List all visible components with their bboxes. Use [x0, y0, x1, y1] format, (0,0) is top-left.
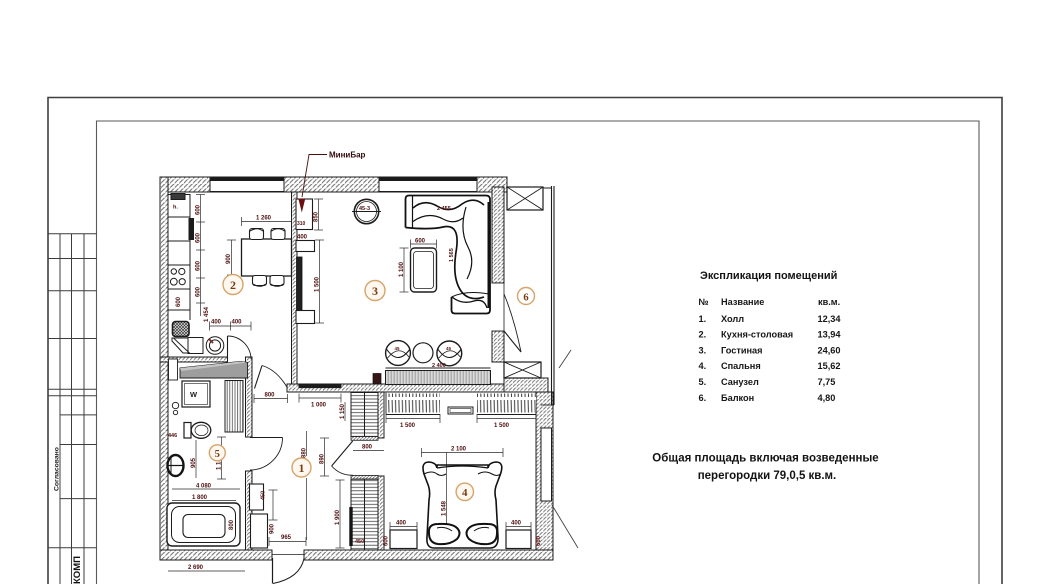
- svg-text:400: 400: [297, 235, 308, 241]
- svg-text:Гостиная: Гостиная: [721, 345, 763, 355]
- svg-text:900: 900: [270, 523, 276, 534]
- svg-text:перегородки 79,0,5 кв.м.: перегородки 79,0,5 кв.м.: [698, 470, 837, 482]
- svg-text:400: 400: [232, 320, 243, 326]
- svg-text:45-3: 45-3: [359, 206, 370, 212]
- svg-text:1 150: 1 150: [340, 403, 346, 419]
- svg-text:900: 900: [226, 253, 232, 264]
- svg-text:Спальня: Спальня: [721, 361, 761, 371]
- svg-text:1 900: 1 900: [335, 509, 341, 525]
- svg-text:3: 3: [372, 284, 378, 298]
- svg-text:1 500: 1 500: [315, 276, 321, 292]
- svg-text:1 454: 1 454: [204, 306, 210, 322]
- svg-text:1 565: 1 565: [449, 248, 455, 262]
- svg-text:800: 800: [229, 519, 235, 530]
- svg-text:45: 45: [395, 346, 401, 351]
- svg-text:2 455: 2 455: [437, 206, 451, 212]
- svg-text:890: 890: [320, 453, 326, 464]
- svg-text:850: 850: [314, 211, 320, 222]
- svg-text:965: 965: [281, 535, 292, 541]
- svg-text:600: 600: [536, 535, 542, 546]
- svg-text:13,94: 13,94: [818, 330, 842, 340]
- svg-text:12,34: 12,34: [818, 314, 842, 324]
- svg-text:1 500: 1 500: [494, 423, 510, 429]
- svg-text:1 000: 1 000: [311, 403, 327, 409]
- svg-text:6.: 6.: [699, 393, 707, 403]
- svg-text:880: 880: [302, 447, 308, 458]
- svg-text:24,60: 24,60: [818, 345, 841, 355]
- svg-text:1 100: 1 100: [399, 261, 405, 277]
- svg-text:6: 6: [523, 293, 528, 304]
- svg-text:КОМП: КОМП: [72, 556, 83, 584]
- svg-text:Экспликация помещений: Экспликация помещений: [700, 270, 837, 282]
- svg-text:2 100: 2 100: [451, 447, 467, 453]
- svg-text:600: 600: [196, 260, 202, 271]
- svg-text:3.: 3.: [699, 345, 707, 355]
- svg-text:400: 400: [396, 521, 407, 527]
- svg-text:7,75: 7,75: [818, 377, 836, 387]
- svg-text:1.: 1.: [699, 314, 707, 324]
- svg-text:5: 5: [215, 449, 220, 460]
- svg-text:4 080: 4 080: [196, 484, 212, 490]
- svg-text:Согласовано: Согласовано: [54, 447, 61, 491]
- svg-text:350: 350: [376, 373, 382, 382]
- svg-text:2.: 2.: [699, 330, 707, 340]
- svg-text:2: 2: [230, 278, 236, 292]
- svg-text:4: 4: [462, 487, 468, 499]
- svg-text:Кухня-столовая: Кухня-столовая: [721, 330, 793, 340]
- svg-text:h.: h.: [173, 205, 178, 211]
- svg-text:600: 600: [196, 232, 202, 243]
- svg-text:1: 1: [299, 461, 305, 475]
- svg-text:5.: 5.: [699, 377, 707, 387]
- svg-text:W: W: [190, 390, 198, 399]
- svg-text:2 400: 2 400: [432, 363, 446, 369]
- svg-text:Общая площадь включая возведен: Общая площадь включая возведенные: [652, 453, 878, 465]
- svg-text:кв.м.: кв.м.: [818, 297, 840, 307]
- svg-text:2 690: 2 690: [188, 565, 204, 571]
- svg-text:4,80: 4,80: [818, 393, 836, 403]
- svg-text:400: 400: [511, 521, 522, 527]
- svg-text:400: 400: [211, 320, 222, 326]
- svg-text:600: 600: [384, 535, 390, 546]
- svg-text:№: №: [699, 297, 709, 307]
- svg-text:15,62: 15,62: [818, 361, 841, 371]
- svg-text:4.: 4.: [699, 361, 707, 371]
- svg-text:1 500: 1 500: [400, 423, 416, 429]
- svg-text:1 800: 1 800: [192, 495, 208, 501]
- svg-text:600: 600: [196, 286, 202, 297]
- svg-text:450: 450: [355, 539, 364, 545]
- svg-text:600: 600: [176, 296, 182, 307]
- svg-text:800: 800: [362, 445, 373, 451]
- svg-text:800: 800: [265, 393, 276, 399]
- svg-text:МиниБар: МиниБар: [329, 151, 366, 160]
- svg-text:Название: Название: [721, 297, 764, 307]
- svg-text:310: 310: [297, 221, 306, 227]
- svg-text:Балкон: Балкон: [721, 393, 754, 403]
- svg-text:Санузел: Санузел: [721, 377, 759, 387]
- svg-text:450: 450: [261, 491, 267, 500]
- svg-text:1 548: 1 548: [442, 500, 448, 516]
- svg-text:905: 905: [191, 457, 197, 468]
- svg-text:600: 600: [196, 204, 202, 215]
- svg-text:446: 446: [168, 433, 177, 439]
- svg-text:1 260: 1 260: [256, 216, 272, 222]
- svg-text:600: 600: [415, 239, 426, 245]
- svg-text:Холл: Холл: [721, 314, 744, 324]
- svg-text:45: 45: [446, 346, 452, 351]
